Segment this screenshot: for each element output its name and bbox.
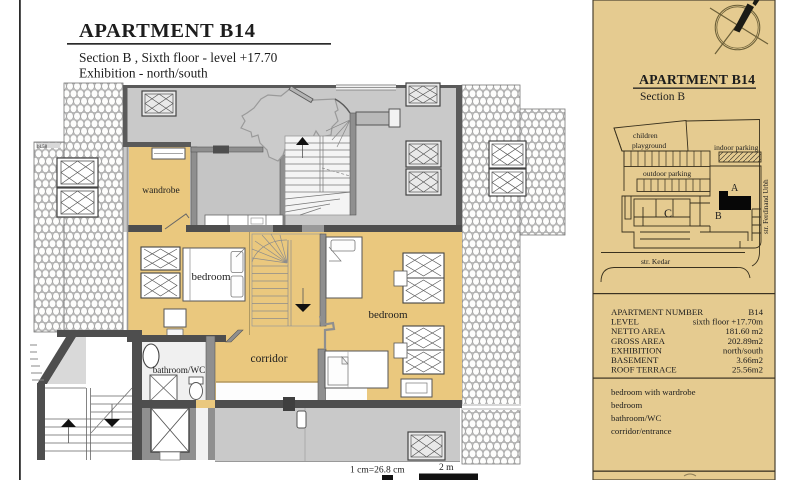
svg-text:181.60 m2: 181.60 m2 xyxy=(725,326,763,336)
svg-text:3.66m2: 3.66m2 xyxy=(736,355,763,365)
svg-text:sixth floor +17.70m: sixth floor +17.70m xyxy=(693,317,763,327)
svg-text:C: C xyxy=(664,206,672,220)
svg-text:APARTMENT B14: APARTMENT B14 xyxy=(639,72,755,87)
svg-text:str. Kedar: str. Kedar xyxy=(641,257,671,266)
svg-text:bedroom: bedroom xyxy=(611,400,642,410)
svg-text:str. Ferdinand Urbh: str. Ferdinand Urbh xyxy=(762,179,770,234)
svg-text:Section B , Sixth floor - lev: Section B , Sixth floor - level +17.70 xyxy=(79,50,278,65)
svg-text:BASEMENT: BASEMENT xyxy=(611,355,659,365)
svg-text:NETTO AREA: NETTO AREA xyxy=(611,326,666,336)
svg-text:outdoor parking: outdoor parking xyxy=(643,169,691,178)
svg-text:APARTMENT B14: APARTMENT B14 xyxy=(79,20,256,42)
svg-text:bl.58: bl.58 xyxy=(37,145,48,150)
svg-text:1 cm=26.8 cm: 1 cm=26.8 cm xyxy=(350,466,405,476)
svg-text:Exhibition - north/south: Exhibition - north/south xyxy=(79,66,208,81)
svg-text:LEVEL: LEVEL xyxy=(611,317,639,327)
svg-text:children: children xyxy=(633,131,658,140)
svg-text:wandrobe: wandrobe xyxy=(142,186,179,196)
svg-text:202.89m2: 202.89m2 xyxy=(728,336,763,346)
svg-text:B: B xyxy=(715,211,722,222)
svg-text:bedroom with wardrobe: bedroom with wardrobe xyxy=(611,387,696,397)
svg-text:indoor parking: indoor parking xyxy=(714,143,759,152)
svg-text:corridor: corridor xyxy=(250,353,287,365)
svg-text:bedroom: bedroom xyxy=(368,309,408,321)
svg-text:2 m: 2 m xyxy=(439,463,454,473)
svg-text:25.56m2: 25.56m2 xyxy=(732,365,763,375)
svg-text:A: A xyxy=(731,183,739,194)
svg-text:bathroom/WC: bathroom/WC xyxy=(153,365,206,375)
svg-text:APARTMENT NUMBER: APARTMENT NUMBER xyxy=(611,307,703,317)
svg-text:Section B: Section B xyxy=(640,91,685,103)
svg-text:GROSS AREA: GROSS AREA xyxy=(611,336,666,346)
svg-text:corridor/entrance: corridor/entrance xyxy=(611,426,672,436)
svg-text:bathroom/WC: bathroom/WC xyxy=(611,413,661,423)
svg-text:bedroom: bedroom xyxy=(191,271,231,283)
svg-text:north/south: north/south xyxy=(723,345,764,355)
svg-text:ROOF TERRACE: ROOF TERRACE xyxy=(611,365,677,375)
svg-text:B14: B14 xyxy=(748,307,763,317)
svg-text:playground: playground xyxy=(632,141,666,150)
svg-text:EXHIBITION: EXHIBITION xyxy=(611,345,662,355)
